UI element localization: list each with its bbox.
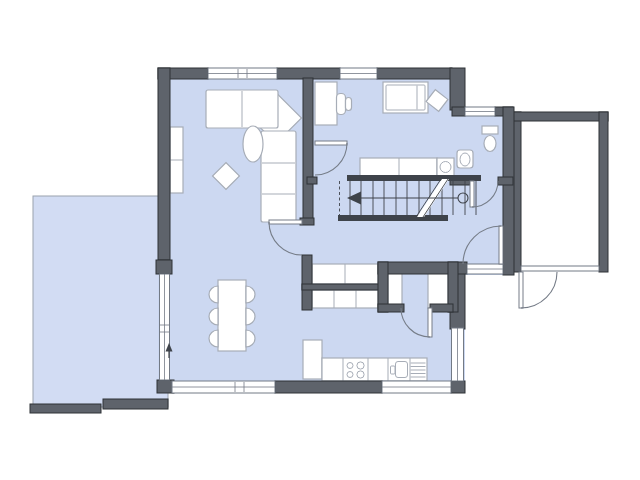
office-chair-back	[337, 94, 346, 115]
bed	[383, 82, 428, 113]
wall-bottom-right-corner	[451, 381, 465, 393]
wall-left-mid-block	[156, 260, 172, 274]
door-utility-leaf	[428, 308, 432, 337]
door-wc-leaf	[470, 181, 474, 207]
utility-cabinet-left	[388, 270, 402, 308]
sofa-side-seat	[261, 131, 296, 222]
terrace	[33, 196, 168, 407]
wall-utility-bottom-left	[378, 304, 404, 312]
toilet-tank	[482, 126, 498, 134]
wall-nib	[307, 177, 317, 184]
wall-top-2	[277, 68, 340, 79]
floor-plan-drawing	[0, 0, 640, 480]
wall-utility-bottom-right	[430, 304, 453, 312]
wall-left	[158, 68, 170, 260]
door-guest-leaf	[315, 141, 347, 145]
garage-wall-right	[599, 112, 608, 272]
wall-right-outer	[503, 107, 514, 275]
wall-bottom-mid	[275, 381, 382, 393]
door-garage-leaf	[519, 272, 523, 308]
garage-wall-top	[512, 112, 608, 121]
kitchen-wall-units	[312, 290, 378, 308]
toilet-bowl	[484, 136, 496, 152]
wall-kitchen-vertical	[302, 255, 312, 310]
kitchen-tall-cabinet	[303, 340, 322, 379]
wall-left-bottom-corner	[157, 380, 174, 393]
wall-wc-bottom-right	[498, 177, 513, 185]
utility-cabinet-right	[428, 270, 448, 308]
wall-living-guest	[303, 78, 313, 223]
door-hall-leaf	[269, 220, 302, 224]
stair-top-rail	[347, 175, 481, 181]
garage-floor	[517, 117, 603, 269]
stair-bottom-rail	[338, 215, 448, 221]
wall-kitchen-horizontal	[302, 284, 380, 290]
garage-door-threshold	[521, 266, 599, 271]
wall-top-3	[377, 68, 452, 79]
floor-plan-page	[0, 0, 640, 480]
coffee-table	[243, 126, 263, 162]
desk	[315, 82, 337, 125]
office-chair-seat	[346, 98, 352, 111]
terrace-privacy-wall-right	[103, 399, 168, 409]
wall-bedroom-right	[450, 68, 465, 110]
door-entry-leaf	[499, 226, 503, 264]
terrace-privacy-wall-left	[30, 404, 101, 413]
door-garage-swing	[521, 272, 557, 308]
wall-wc-top-left	[452, 107, 465, 116]
dining-table	[218, 280, 246, 351]
